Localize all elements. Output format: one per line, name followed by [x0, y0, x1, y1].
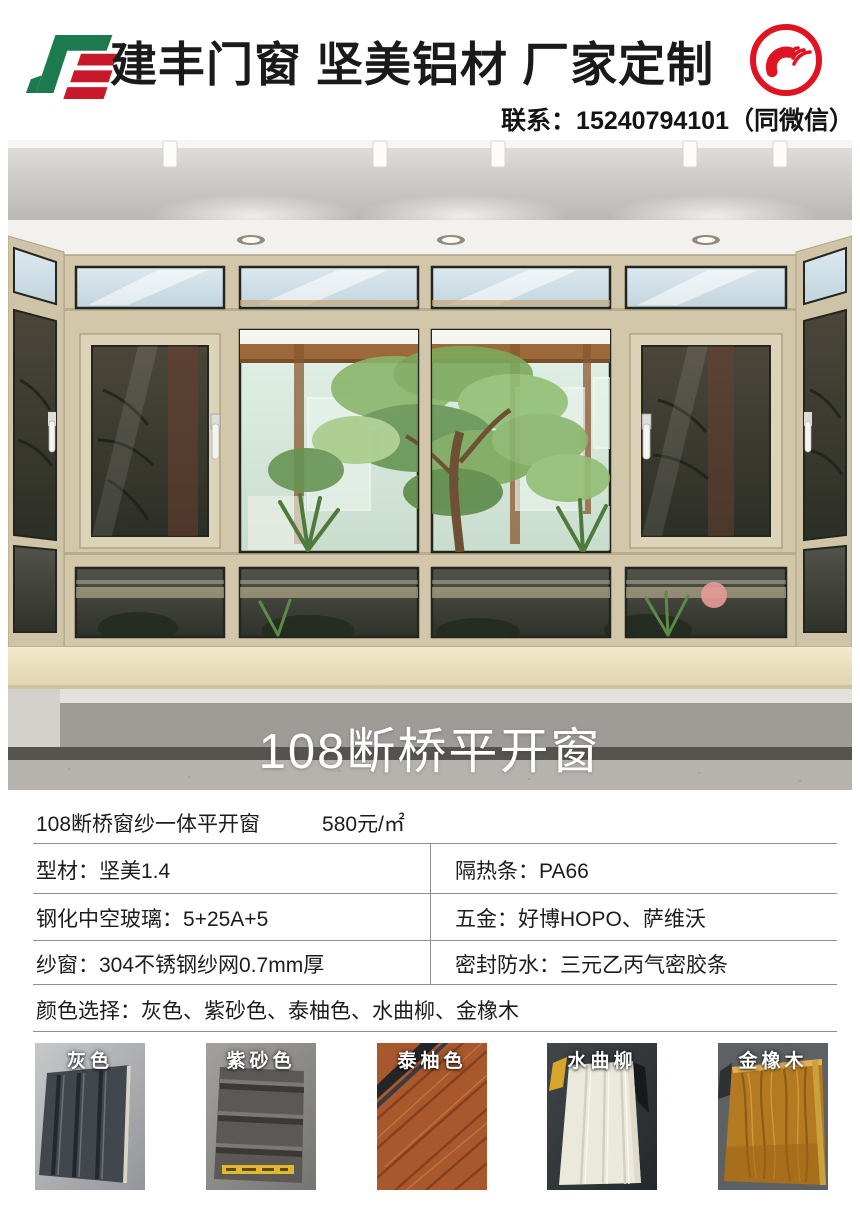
spec-cell-glass: 钢化中空玻璃：5+25A+5 [36, 903, 268, 933]
spec-cell-screen: 纱窗：304不锈钢纱网0.7mm厚 [36, 949, 324, 979]
contact-line: 联系：15240794101（同微信） [501, 101, 854, 137]
swatch-label: 灰色 [35, 1046, 145, 1073]
spec-cell-insulation: 隔热条：PA66 [455, 855, 589, 885]
divider [33, 893, 837, 894]
swatch-teak: 泰柚色 [377, 1043, 487, 1190]
spec-product-row: 108断桥窗纱一体平开窗580元/㎡ [36, 808, 405, 838]
divider [33, 843, 837, 844]
swatch-ash-wood: 水曲柳 [547, 1043, 657, 1190]
divider [33, 984, 837, 985]
spec-cell-sealing: 密封防水：三元乙丙气密胶条 [455, 949, 728, 979]
spec-price: 580元/㎡ [322, 813, 405, 836]
divider [33, 940, 837, 941]
header: 建丰门窗 坚美铝材 厂家定制 联系：15240794101（同微信） [0, 0, 860, 140]
swatch-label: 紫砂色 [206, 1046, 316, 1073]
swatch-label: 水曲柳 [547, 1046, 657, 1073]
page-title: 建丰门窗 坚美铝材 厂家定制 [110, 26, 760, 95]
bay-window-scene-graphic [8, 140, 852, 790]
divider [33, 1031, 837, 1032]
phone-call-icon [748, 22, 824, 98]
spec-product-name: 108断桥窗纱一体平开窗 [36, 813, 260, 836]
spec-cell-hardware: 五金：好博HOPO、萨维沃 [455, 903, 706, 933]
flyer-page: 建丰门窗 坚美铝材 厂家定制 联系：15240794101（同微信） [0, 0, 860, 1216]
swatch-label: 金橡木 [718, 1046, 828, 1073]
swatch-golden-oak: 金橡木 [718, 1043, 828, 1190]
hero-caption: 108断桥平开窗 [8, 712, 852, 783]
column-divider [430, 843, 431, 984]
swatch-purple-sand: 紫砂色 [206, 1043, 316, 1190]
hero-photo: 108断桥平开窗 [8, 140, 852, 790]
spec-colors-row: 颜色选择：灰色、紫砂色、泰柚色、水曲柳、金橡木 [36, 995, 519, 1025]
spec-cell-profile: 型材：坚美1.4 [36, 855, 170, 885]
swatch-label: 泰柚色 [377, 1046, 487, 1073]
swatch-gray: 灰色 [35, 1043, 145, 1190]
